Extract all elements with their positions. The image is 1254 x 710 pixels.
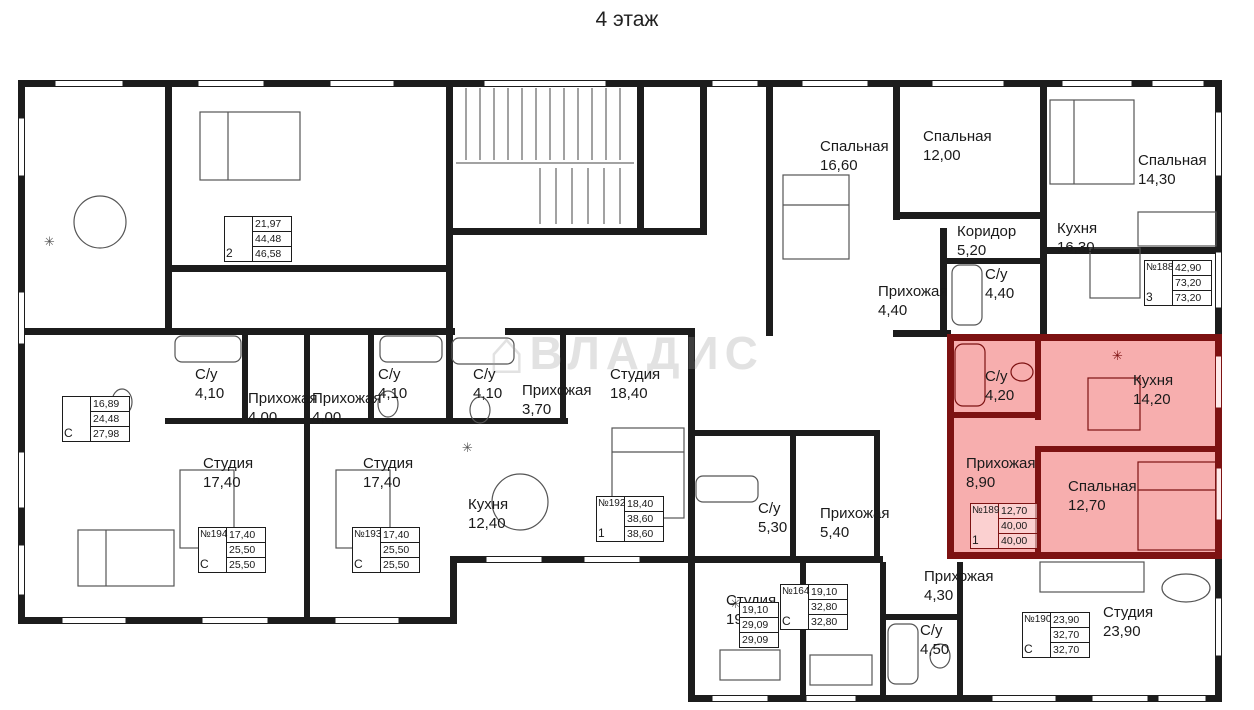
room-label: Спальная12,70 bbox=[1068, 478, 1137, 516]
unit-info-box: №190С 23,9032,7032,70 bbox=[1022, 612, 1090, 658]
room-label: Прихожая4,00 bbox=[312, 390, 382, 428]
room-label: Прихожая4,00 bbox=[248, 390, 318, 428]
unit-id-cell: №1891 bbox=[970, 503, 999, 549]
unit-info-box: №193С 17,4025,5025,50 bbox=[352, 527, 420, 573]
unit-areas-cell: 12,7040,0040,00 bbox=[998, 503, 1038, 549]
unit-areas-cell: 23,9032,7032,70 bbox=[1050, 612, 1090, 658]
unit-info-box: 2 21,9744,4846,58 bbox=[224, 216, 292, 262]
unit-areas-cell: 17,4025,5025,50 bbox=[226, 527, 266, 573]
room-label: С/у4,10 bbox=[473, 366, 502, 404]
unit-areas-cell: 16,8924,4827,98 bbox=[90, 396, 130, 442]
room-label: Спальная16,60 bbox=[820, 138, 889, 176]
unit-areas-cell: 19,1032,8032,80 bbox=[808, 584, 848, 630]
floorplan-page: 4 этаж bbox=[0, 0, 1254, 710]
room-label: С/у4,40 bbox=[985, 266, 1014, 304]
room-label: Прихожая8,90 bbox=[966, 455, 1036, 493]
room-label: С/у5,30 bbox=[758, 500, 787, 538]
unit-areas-cell: 17,4025,5025,50 bbox=[380, 527, 420, 573]
room-label: Прихожая5,40 bbox=[820, 505, 890, 543]
unit-info-box: С 16,8924,4827,98 bbox=[62, 396, 130, 442]
unit-info-box: №1921 18,4038,6038,60 bbox=[596, 496, 664, 542]
unit-id-cell: №193С bbox=[352, 527, 381, 573]
room-label: Кухня14,20 bbox=[1133, 372, 1173, 410]
room-label: Спальная12,00 bbox=[923, 128, 992, 166]
unit-id-cell: №190С bbox=[1022, 612, 1051, 658]
room-label: Спальная14,30 bbox=[1138, 152, 1207, 190]
svg-text:✳: ✳ bbox=[44, 235, 55, 250]
unit-id-cell: №164С bbox=[780, 584, 809, 630]
room-label: Студия18,40 bbox=[610, 366, 660, 404]
unit-areas-cell: 18,4038,6038,60 bbox=[624, 496, 664, 542]
room-label: Кухня16,30 bbox=[1057, 220, 1097, 258]
svg-text:✳: ✳ bbox=[462, 441, 473, 456]
unit-id-cell: №194С bbox=[198, 527, 227, 573]
unit-areas-cell: 19,1029,0929,09 bbox=[739, 602, 779, 648]
unit-id-cell: С bbox=[62, 396, 91, 442]
unit-info-box: №194С 17,4025,5025,50 bbox=[198, 527, 266, 573]
unit-info-box: №1883 42,9073,2073,20 bbox=[1144, 260, 1212, 306]
unit-id-cell: 2 bbox=[224, 216, 253, 262]
unit-info-box: №164С 19,1032,8032,80 bbox=[780, 584, 848, 630]
unit-areas-cell: 21,9744,4846,58 bbox=[252, 216, 292, 262]
room-label: С/у4,10 bbox=[378, 366, 407, 404]
room-label: Прихожая3,70 bbox=[522, 382, 592, 420]
unit-areas-cell: 42,9073,2073,20 bbox=[1172, 260, 1212, 306]
unit-id-cell: №1921 bbox=[596, 496, 625, 542]
unit-id-cell: №1883 bbox=[1144, 260, 1173, 306]
unit-info-box: 19,1029,0929,09 bbox=[740, 602, 779, 648]
room-label: Коридор5,20 bbox=[957, 223, 1016, 261]
room-label: Студия17,40 bbox=[363, 455, 413, 493]
room-label: Студия23,90 bbox=[1103, 604, 1153, 642]
room-label: С/у4,10 bbox=[195, 366, 224, 404]
room-label: С/у4,20 bbox=[985, 368, 1014, 406]
unit-info-box-highlighted: №1891 12,7040,0040,00 bbox=[970, 503, 1038, 549]
room-label: Студия17,40 bbox=[203, 455, 253, 493]
stairs bbox=[456, 88, 634, 224]
room-label: С/у4,50 bbox=[920, 622, 949, 660]
room-label: Прихожая4,30 bbox=[924, 568, 994, 606]
room-label: Прихожая4,40 bbox=[878, 283, 948, 321]
room-label: Кухня12,40 bbox=[468, 496, 508, 534]
